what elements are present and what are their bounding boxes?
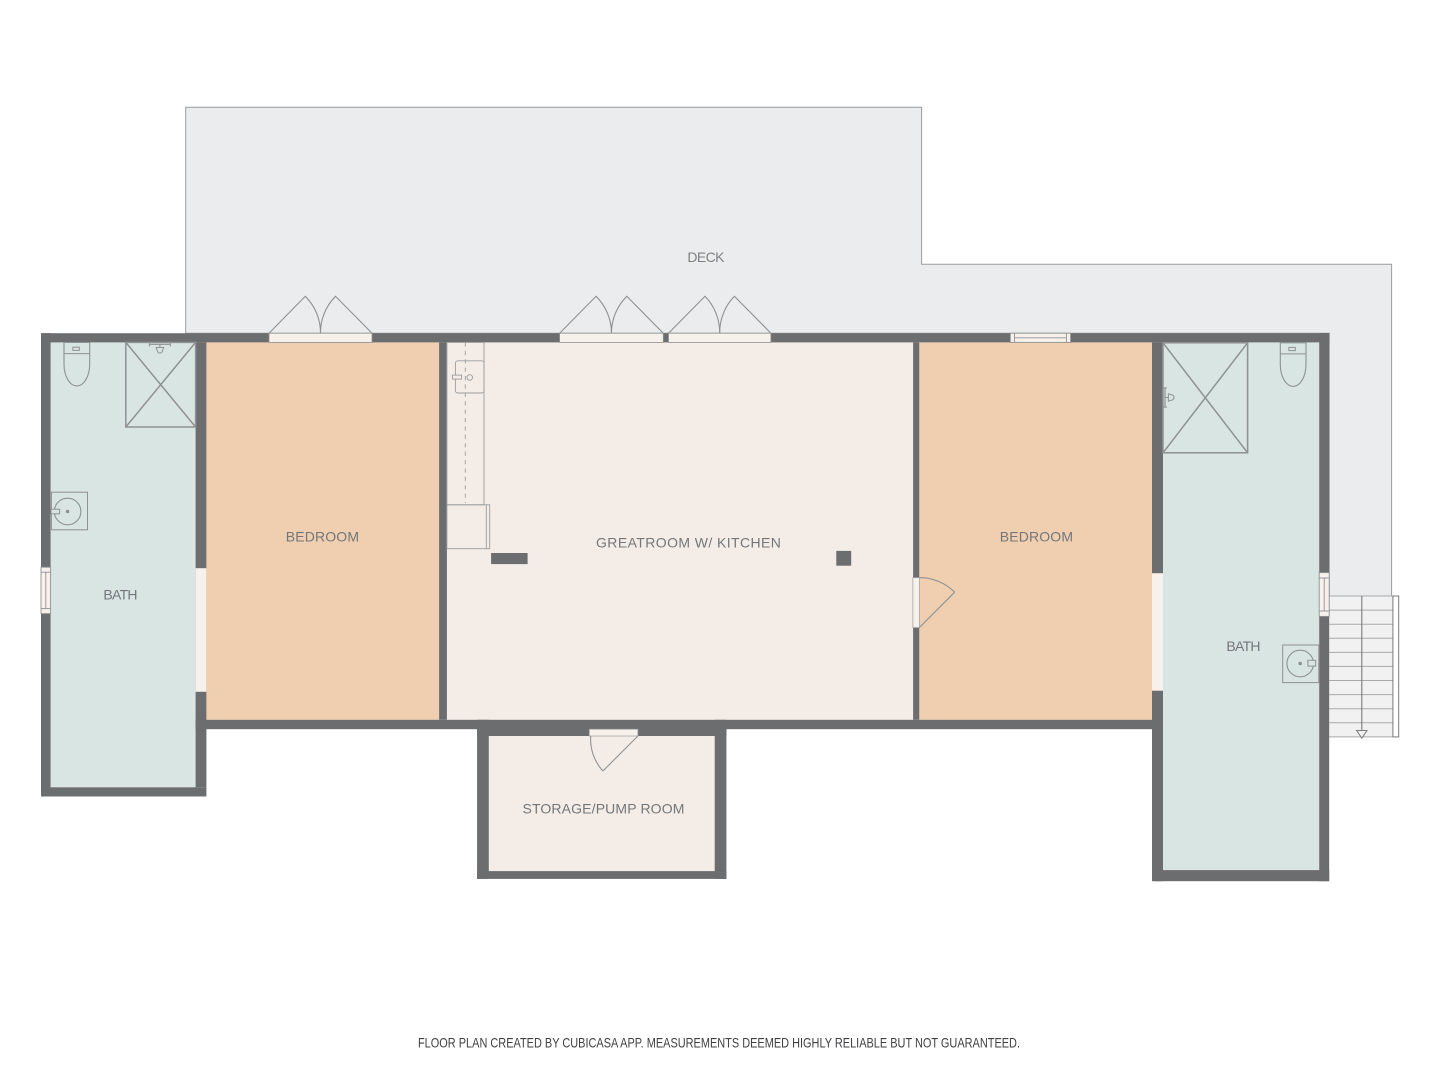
svg-text:BATH: BATH <box>103 586 138 602</box>
svg-text:DECK: DECK <box>687 249 725 265</box>
svg-text:BEDROOM: BEDROOM <box>286 528 360 544</box>
svg-text:BEDROOM: BEDROOM <box>1000 528 1074 544</box>
svg-text:GREATROOM W/ KITCHEN: GREATROOM W/ KITCHEN <box>596 534 782 550</box>
svg-text:BATH: BATH <box>1226 638 1261 654</box>
svg-text:FLOOR PLAN CREATED BY CUBICASA: FLOOR PLAN CREATED BY CUBICASA APP. MEAS… <box>418 1035 1020 1051</box>
svg-text:STORAGE/PUMP ROOM: STORAGE/PUMP ROOM <box>523 800 686 816</box>
